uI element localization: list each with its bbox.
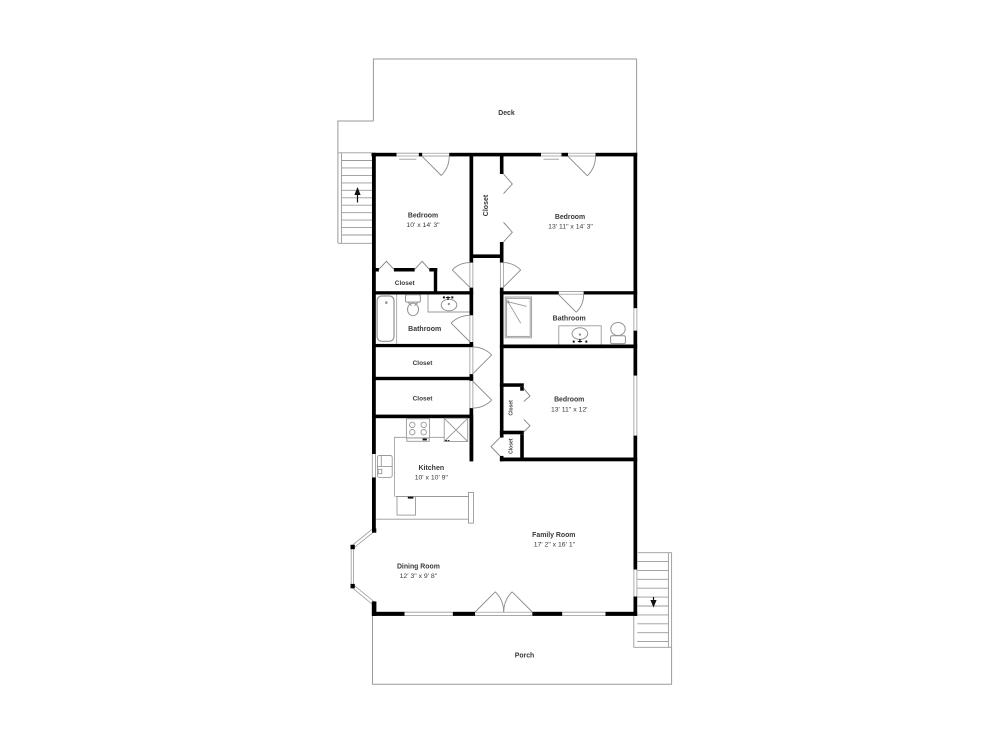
svg-text:Family Room: Family Room <box>532 532 575 539</box>
svg-text:Bathroom: Bathroom <box>408 326 441 333</box>
svg-text:Dining Room: Dining Room <box>397 564 440 571</box>
svg-text:10' x 14' 3": 10' x 14' 3" <box>406 222 440 229</box>
svg-text:10' x 10' 9": 10' x 10' 9" <box>415 475 449 482</box>
svg-text:Bathroom: Bathroom <box>553 315 586 322</box>
svg-text:12' 3" x 9' 8": 12' 3" x 9' 8" <box>400 573 438 580</box>
svg-text:Closet: Closet <box>413 360 434 367</box>
svg-text:Bedroom: Bedroom <box>554 397 584 404</box>
svg-text:17' 2" x 16' 1": 17' 2" x 16' 1" <box>534 541 576 548</box>
svg-text:13' 11" x 12': 13' 11" x 12' <box>551 406 588 413</box>
svg-text:Closet: Closet <box>509 438 515 454</box>
svg-text:Closet: Closet <box>483 194 490 216</box>
svg-text:Closet: Closet <box>395 280 416 287</box>
svg-text:Porch: Porch <box>515 653 535 660</box>
svg-text:Closet: Closet <box>413 396 434 403</box>
svg-text:13' 11" x 14' 3": 13' 11" x 14' 3" <box>548 224 593 231</box>
svg-text:Bedroom: Bedroom <box>555 214 585 221</box>
svg-text:Closet: Closet <box>509 400 515 416</box>
svg-text:Kitchen: Kitchen <box>418 465 444 472</box>
svg-text:Deck: Deck <box>498 110 515 117</box>
svg-text:Bedroom: Bedroom <box>408 213 438 220</box>
